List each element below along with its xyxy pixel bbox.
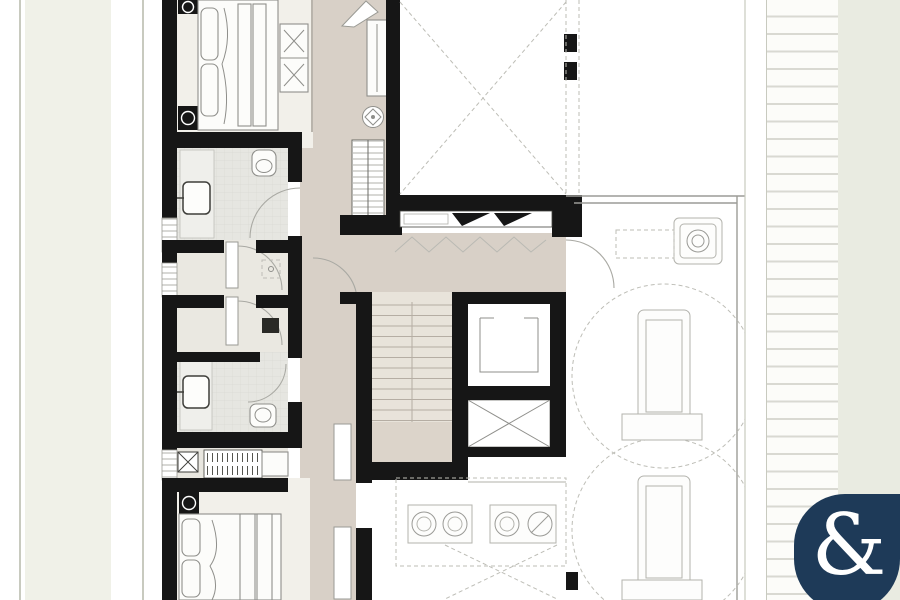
pillow-icon <box>182 519 200 556</box>
pillow-icon <box>201 64 218 116</box>
lift-wall <box>452 447 566 457</box>
wall <box>162 478 288 492</box>
floor-plan-drawing <box>0 0 900 600</box>
staircase <box>372 302 452 466</box>
fan-hub <box>371 115 375 119</box>
wall <box>162 295 224 308</box>
drain-unit <box>262 318 279 333</box>
pillow-icon <box>201 8 218 60</box>
pillow-icon <box>182 560 200 597</box>
brand-logo-badge: & <box>794 494 900 600</box>
duvet-fold <box>238 4 251 126</box>
wall-corner <box>552 211 582 237</box>
exterior-wall-left <box>162 480 177 600</box>
duvet-fold <box>257 514 272 600</box>
duvet-fold <box>240 514 255 600</box>
wall <box>288 132 302 182</box>
lounger-foot-bench <box>622 414 702 440</box>
lounger-foot-bench <box>622 580 702 600</box>
door-leaf <box>226 297 238 345</box>
stair-landing <box>372 422 452 466</box>
void-x-lines <box>400 2 566 194</box>
column <box>566 572 578 590</box>
counter-unit <box>262 452 288 476</box>
wall-corner <box>340 215 402 235</box>
wall <box>288 236 302 358</box>
wall <box>356 462 468 480</box>
duvet-fold <box>253 4 266 126</box>
wall <box>162 352 260 362</box>
exterior-wall-left <box>162 0 177 218</box>
door-leaf <box>334 424 351 480</box>
lift-wall <box>466 386 550 400</box>
facade-band <box>400 195 582 211</box>
wall <box>162 432 302 448</box>
landing-floor <box>302 233 582 292</box>
wall <box>162 132 302 148</box>
window-hatch <box>162 450 177 480</box>
wall <box>162 240 224 253</box>
bedroom-1-threshold-line <box>311 0 313 132</box>
shower-unit-icon <box>183 182 210 214</box>
appliance-hatch <box>206 453 260 462</box>
void-markings <box>400 0 579 196</box>
exterior-wall-left <box>162 297 177 450</box>
lift-wall <box>452 292 566 304</box>
sink-icon <box>250 404 276 427</box>
stair-wall <box>356 292 372 483</box>
ampersand-logo-icon: & <box>812 503 887 587</box>
mullion <box>162 252 177 263</box>
stair-wall <box>356 528 372 600</box>
door-leaf <box>226 242 238 288</box>
door-leaf <box>334 527 351 599</box>
hallway-wall <box>386 0 400 215</box>
wall <box>340 292 366 304</box>
lift-wall <box>550 292 566 457</box>
lift-wall <box>452 292 468 462</box>
appliance-hatch <box>206 466 260 475</box>
floor-plan-image: & <box>0 0 900 600</box>
shower-unit-icon <box>183 376 209 408</box>
window-hatch <box>162 263 177 297</box>
